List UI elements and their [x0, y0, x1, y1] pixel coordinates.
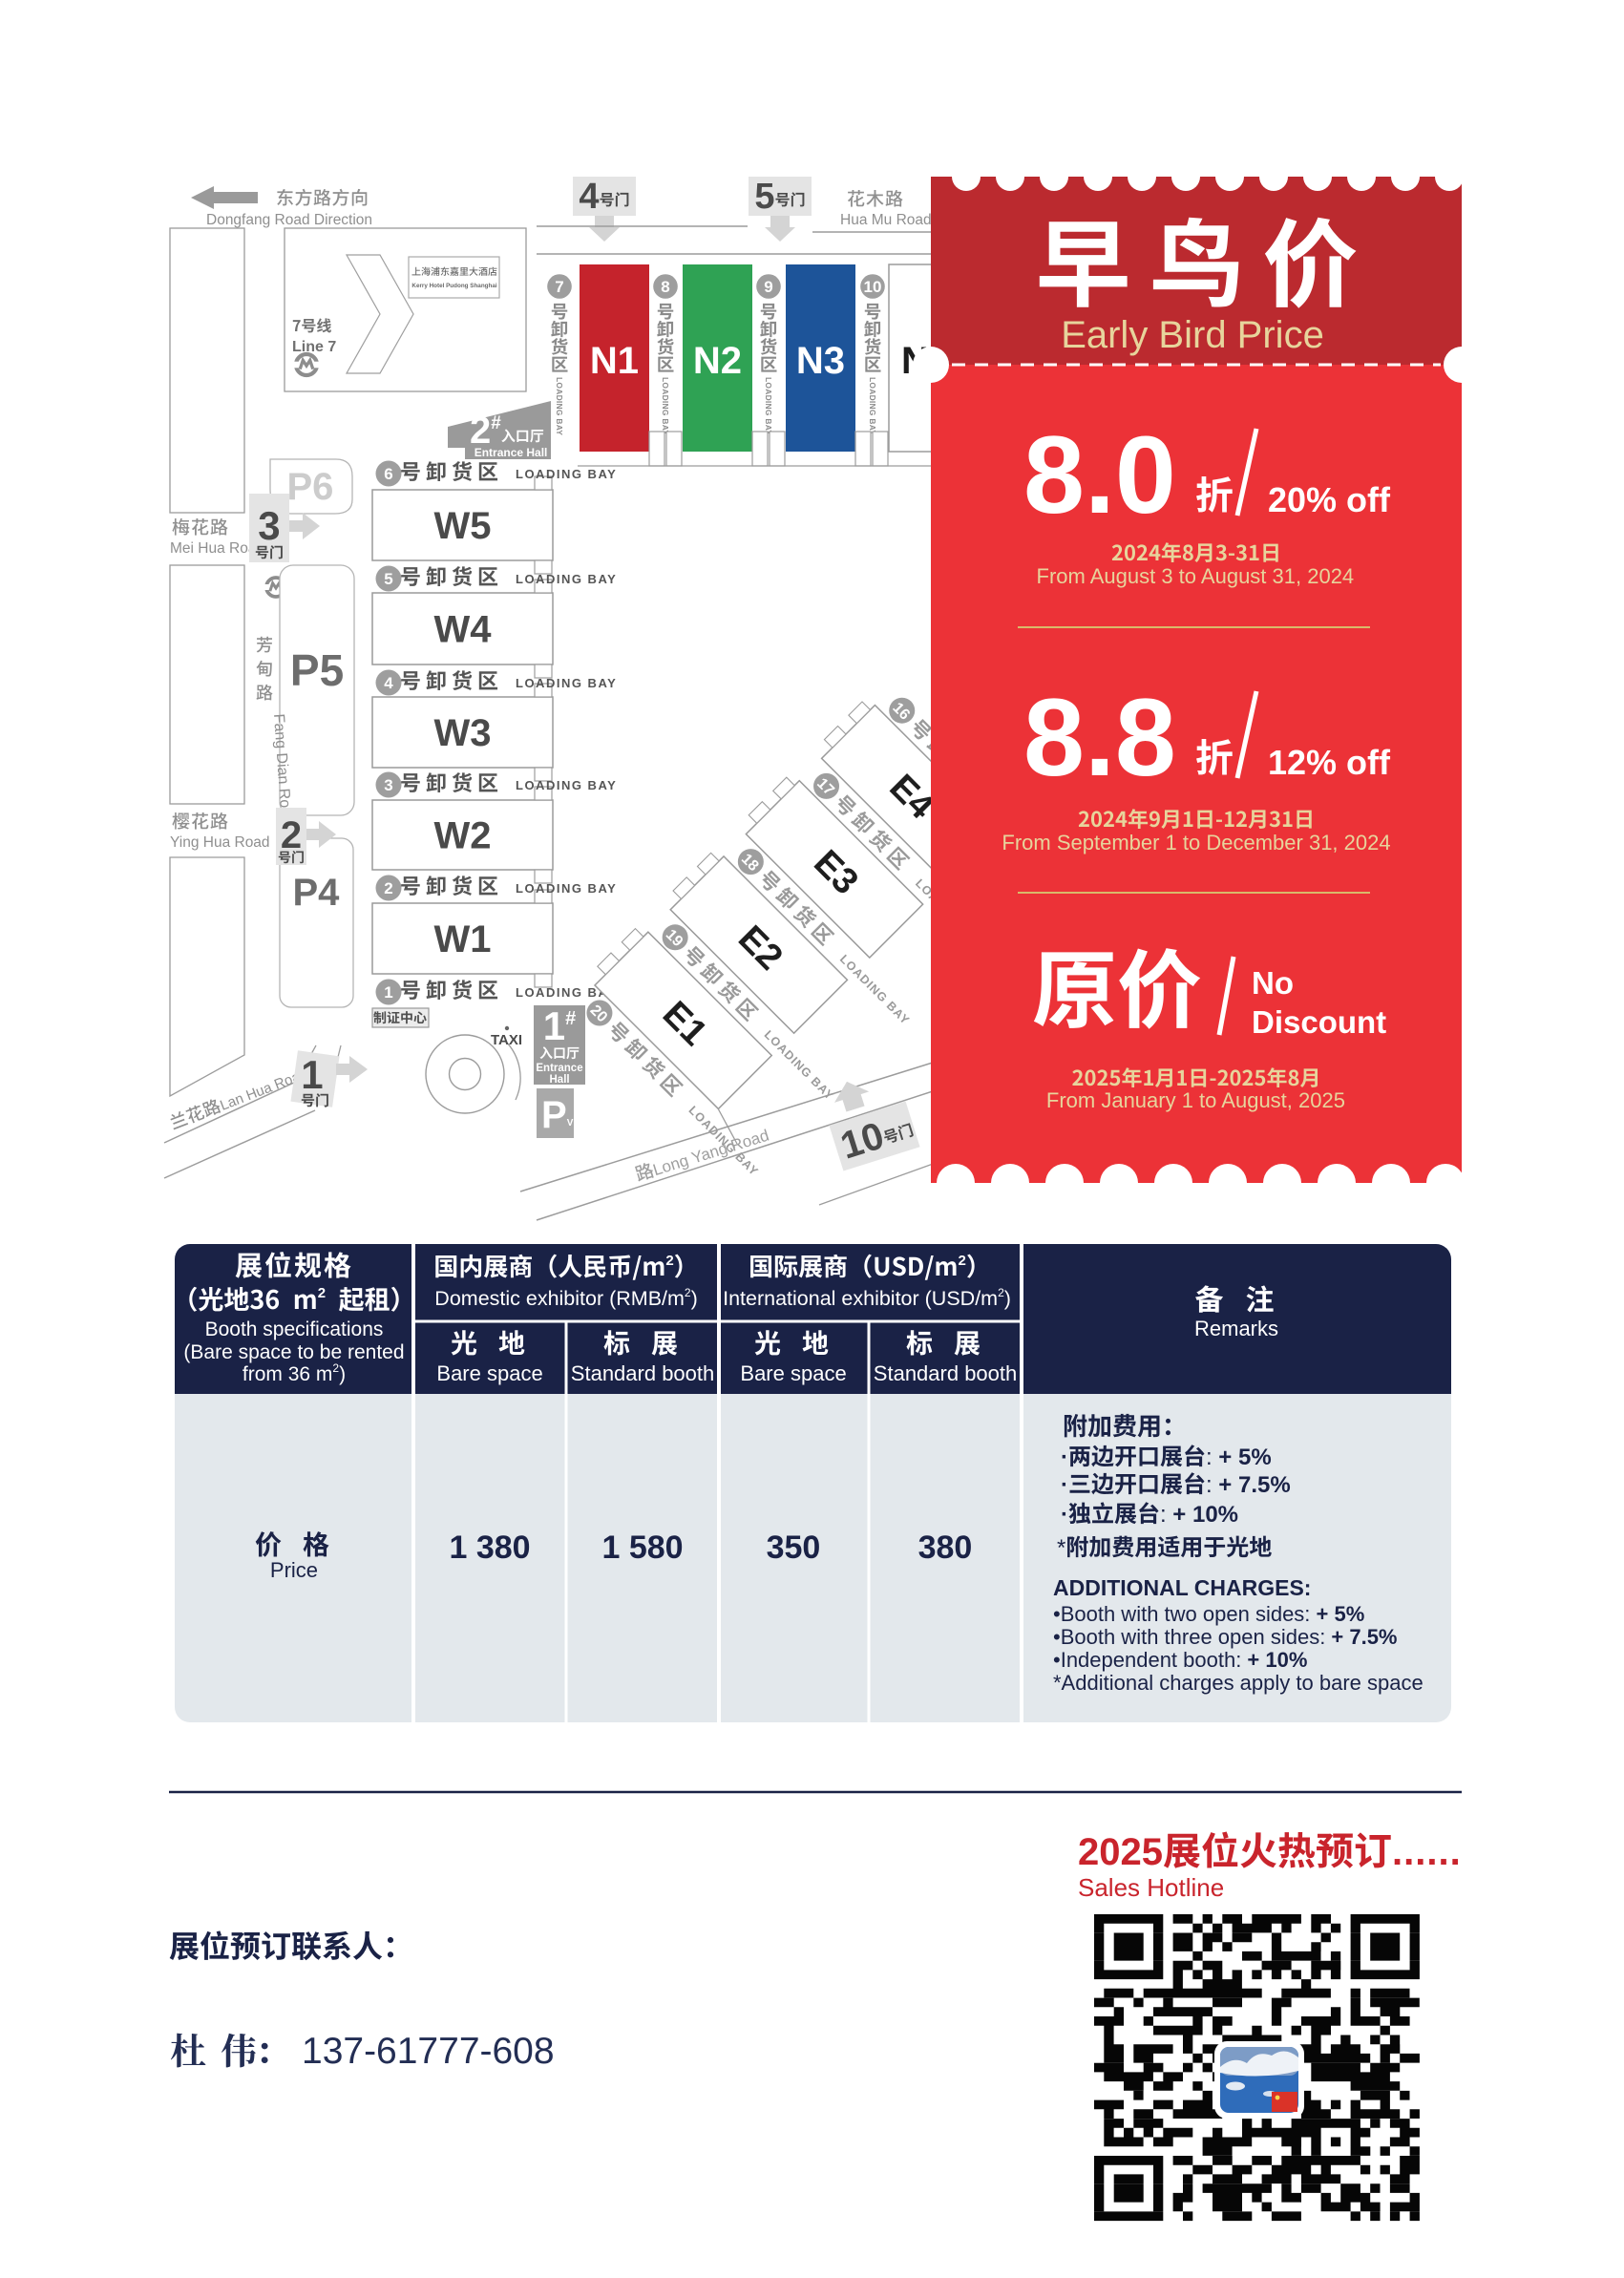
svg-text:Hall: Hall: [550, 1074, 570, 1086]
svg-text:From January 1 to August, 2025: From January 1 to August, 2025: [1046, 1088, 1345, 1112]
svg-text:W5: W5: [434, 505, 492, 547]
svg-text:350: 350: [767, 1529, 821, 1566]
svg-text:International exhibitor (USD/m: International exhibitor (USD/m: [723, 1287, 998, 1310]
svg-text:Entrance: Entrance: [536, 1063, 582, 1074]
svg-text:1: 1: [384, 983, 392, 1002]
svg-text:*Additional charges apply to b: *Additional charges apply to bare space: [1053, 1671, 1424, 1695]
svg-text:5: 5: [754, 177, 774, 217]
svg-text:Kerry Hotel Pudong Shanghai: Kerry Hotel Pudong Shanghai: [411, 283, 496, 289]
svg-text:380: 380: [918, 1529, 973, 1566]
svg-text:W3: W3: [434, 712, 492, 754]
svg-text:Bare space: Bare space: [436, 1361, 542, 1385]
svg-text:LOADING BAY: LOADING BAY: [516, 572, 617, 586]
svg-text:Dongfang Road Direction: Dongfang Road Direction: [206, 212, 372, 228]
svg-text:Domestic exhibitor (RMB/m: Domestic exhibitor (RMB/m: [434, 1287, 685, 1310]
svg-text:*: *: [1057, 1535, 1065, 1561]
svg-text:4: 4: [384, 674, 393, 692]
svg-text:4: 4: [579, 177, 599, 217]
svg-text:2: 2: [665, 1253, 673, 1269]
svg-text:From September 1 to December 3: From September 1 to December 31, 2024: [1002, 831, 1390, 854]
svg-text:N1: N1: [590, 340, 639, 382]
svg-text:Discount: Discount: [1252, 1004, 1386, 1040]
svg-text:·: ·: [1061, 1472, 1068, 1498]
svg-text:W4: W4: [434, 609, 493, 651]
svg-text:+ 10%: + 10%: [1247, 1648, 1307, 1672]
svg-text:+ 7.5%: + 7.5%: [1218, 1472, 1290, 1498]
svg-text:(Bare space to be rented: (Bare space to be rented: [183, 1341, 404, 1363]
svg-text:1: 1: [301, 1052, 323, 1097]
svg-text:8.0: 8.0: [1023, 414, 1176, 537]
svg-text:Sales Hotline: Sales Hotline: [1078, 1873, 1224, 1902]
svg-text:Ying Hua Road: Ying Hua Road: [170, 834, 270, 851]
svg-text:2: 2: [959, 1253, 966, 1269]
svg-text:Entrance Hall: Entrance Hall: [475, 446, 548, 459]
svg-text:20% off: 20% off: [1268, 480, 1391, 519]
svg-text:Early Bird Price: Early Bird Price: [1061, 314, 1324, 356]
svg-text:LOADING BAY: LOADING BAY: [516, 881, 617, 896]
svg-text:): ): [1004, 1287, 1011, 1310]
svg-text:TAXI: TAXI: [491, 1032, 522, 1048]
svg-text:9: 9: [764, 278, 772, 296]
svg-text:LOADING BAY: LOADING BAY: [516, 676, 617, 690]
svg-text:P6: P6: [287, 466, 334, 508]
svg-text:Standard booth: Standard booth: [571, 1361, 714, 1385]
svg-text:1 580: 1 580: [602, 1529, 684, 1566]
svg-text:12% off: 12% off: [1268, 743, 1391, 782]
svg-text:VIP: VIP: [567, 1118, 582, 1128]
svg-text:N2: N2: [693, 340, 742, 382]
svg-text:P4: P4: [293, 872, 341, 914]
svg-text:2: 2: [318, 1285, 326, 1301]
svg-text:7: 7: [555, 278, 563, 296]
svg-text:P5: P5: [290, 645, 344, 695]
svg-text:+ 5%: + 5%: [1218, 1445, 1271, 1470]
svg-text:LOADING BAY: LOADING BAY: [555, 377, 564, 435]
svg-text:8: 8: [661, 278, 669, 296]
svg-text:+ 10%: + 10%: [1172, 1502, 1238, 1528]
svg-text:•Booth with two open sides:: •Booth with two open sides:: [1053, 1602, 1310, 1626]
svg-text:+ 5%: + 5%: [1317, 1602, 1365, 1626]
svg-text:•Booth with three open sides:: •Booth with three open sides:: [1053, 1625, 1325, 1649]
svg-text:#: #: [565, 1008, 576, 1029]
svg-text::: :: [1206, 1472, 1213, 1498]
svg-text:): ): [339, 1363, 346, 1385]
svg-text:5: 5: [384, 570, 392, 588]
svg-text:+ 7.5%: + 7.5%: [1331, 1625, 1397, 1649]
svg-text:W1: W1: [434, 918, 492, 960]
svg-text:•Independent booth:: •Independent booth:: [1053, 1648, 1241, 1672]
svg-text:from 36 m: from 36 m: [243, 1363, 333, 1385]
svg-text:Standard booth: Standard booth: [874, 1361, 1017, 1385]
svg-text:2: 2: [281, 814, 302, 856]
svg-text:Bare space: Bare space: [740, 1361, 846, 1385]
svg-text:Remarks: Remarks: [1194, 1317, 1278, 1340]
svg-text::: :: [1206, 1445, 1213, 1470]
svg-text:ADDITIONAL CHARGES:: ADDITIONAL CHARGES:: [1053, 1575, 1311, 1600]
svg-text:From August 3 to August 31, 20: From August 3 to August 31, 2024: [1037, 564, 1355, 588]
svg-text:3: 3: [384, 776, 392, 794]
svg-text:10: 10: [864, 278, 882, 296]
svg-text:1: 1: [543, 1003, 565, 1048]
svg-text:LOADING BAY: LOADING BAY: [661, 377, 670, 435]
svg-text:LOADING BAY: LOADING BAY: [837, 952, 913, 1027]
svg-text:·: ·: [1061, 1445, 1068, 1470]
svg-text:Price: Price: [270, 1558, 318, 1582]
svg-text:LOADING BAY: LOADING BAY: [762, 1028, 837, 1104]
svg-text:2: 2: [384, 879, 392, 897]
svg-text:Line 7: Line 7: [292, 339, 336, 355]
svg-text::: :: [1160, 1502, 1167, 1528]
svg-text:8.8: 8.8: [1023, 677, 1176, 799]
svg-text:LOADING BAY: LOADING BAY: [764, 377, 773, 435]
svg-text:P: P: [541, 1094, 567, 1136]
svg-text:·: ·: [1061, 1502, 1068, 1528]
svg-text:Booth specifications: Booth specifications: [205, 1318, 384, 1340]
svg-text:2025: 2025: [1078, 1831, 1163, 1873]
svg-text:LOADING BAY: LOADING BAY: [516, 467, 617, 481]
svg-text:LOADING BAY: LOADING BAY: [868, 377, 877, 435]
svg-text:6: 6: [384, 465, 392, 483]
svg-text:N3: N3: [796, 340, 845, 382]
svg-text:Hua Mu Road: Hua Mu Road: [840, 212, 932, 228]
svg-text:137-61777-608: 137-61777-608: [302, 2031, 555, 2072]
svg-text:LOADING BAY: LOADING BAY: [516, 778, 617, 792]
svg-text:1 380: 1 380: [450, 1529, 531, 1566]
svg-text:W2: W2: [434, 815, 492, 857]
svg-text:No: No: [1252, 965, 1294, 1001]
svg-text:): ): [691, 1287, 698, 1310]
svg-text:3: 3: [258, 503, 280, 548]
svg-text:......: ......: [1392, 1831, 1462, 1873]
svg-text:#: #: [491, 413, 501, 433]
